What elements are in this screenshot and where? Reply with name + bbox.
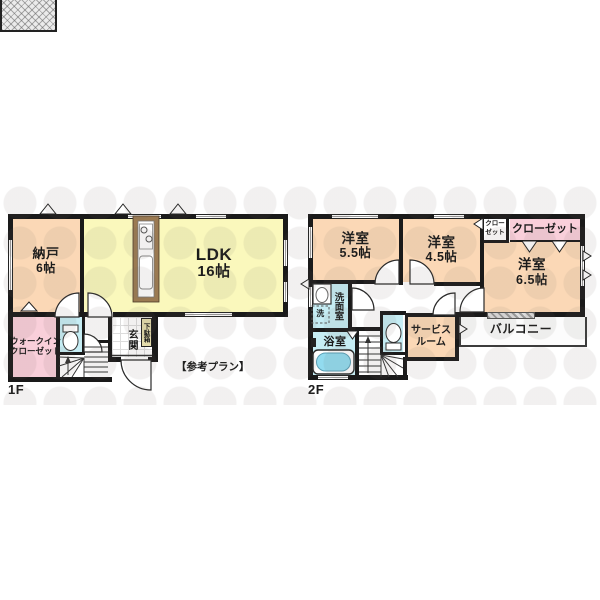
floor-plan-image: 納戸 6帖 LDK 16帖 ウォークイン クローゼット 玄関 下駄箱 1F 【参… <box>0 0 600 600</box>
label-floor2: 2F <box>308 383 338 397</box>
f2-window-left-2 <box>308 287 313 307</box>
label-laundry: 洗 <box>313 310 328 319</box>
label-service-2: ルーム <box>406 337 456 348</box>
label-yokushitsu: 浴室 <box>317 336 353 348</box>
label-wic-1: ウォークイン <box>10 337 56 346</box>
f2-wall-45-bottom <box>434 282 480 286</box>
label-nando-size: 6帖 <box>12 262 80 275</box>
f2-wall-service-left <box>405 313 408 359</box>
label-bedroom55: 洋室 <box>312 232 399 247</box>
f1-wall-hall-stairs <box>82 340 108 343</box>
vent-triangle-1f-c <box>170 204 186 214</box>
label-ldk-size: 16帖 <box>176 264 252 281</box>
f2-wall-hall-stairs <box>352 327 383 331</box>
door-arc-senmen <box>352 288 374 310</box>
f1-wall-nando-wic <box>8 312 55 317</box>
stairs-up-arrow-2f <box>365 336 371 343</box>
f2-window-right <box>580 246 585 286</box>
f2-window-top-1 <box>332 214 378 219</box>
label-bedroom45-size: 4.5帖 <box>403 251 480 265</box>
f1-window-top-1 <box>128 214 161 219</box>
label-bedroom65-size: 6.5帖 <box>484 274 580 288</box>
f1-window-right-2 <box>283 282 288 302</box>
f2-wall-bath-right <box>355 330 359 377</box>
door-arc-service <box>433 293 455 315</box>
f2-wall-toilet-bottom <box>380 352 406 355</box>
label-closet-small-2: ゼット <box>484 229 506 236</box>
f1-window-right-1 <box>283 240 288 266</box>
label-bedroom55-size: 5.5帖 <box>312 247 399 261</box>
label-service-1: サービス <box>406 325 456 336</box>
f1-wall-genkan-right <box>152 316 158 362</box>
f2-wall-closet-divider <box>506 219 509 243</box>
stairs-up-arrow-1f <box>65 356 71 363</box>
label-floor1: 1F <box>8 383 38 397</box>
f2-wall-55-bottom <box>312 280 375 284</box>
f1-window-ldk-south <box>185 312 232 317</box>
label-plan-note: 【参考プラン】 <box>176 362 240 374</box>
label-closet-large: クローゼット <box>510 223 580 235</box>
label-genkan: 玄関 <box>126 325 137 355</box>
f2-wall-senmen-right <box>348 280 352 330</box>
label-balcony: バルコニー <box>459 323 583 336</box>
label-bedroom65: 洋室 <box>484 258 580 273</box>
f1-wall-nando-ldk <box>80 219 84 312</box>
door-arc-entrance <box>121 360 151 390</box>
label-nando: 納戸 <box>12 247 80 261</box>
f1-wall-genkan-left <box>108 316 112 362</box>
vent-triangle-1f-b <box>115 204 131 214</box>
room-toilet-2f <box>383 315 403 352</box>
door-arc-bedroom65 <box>460 288 484 312</box>
f2-wall-toilet-top <box>380 311 406 315</box>
f2-wall-service-top <box>405 313 459 317</box>
entrance-porch <box>0 0 57 32</box>
f2-window-bath <box>318 375 348 380</box>
label-closet-small-1: クロー <box>484 220 506 227</box>
label-ldk: LDK <box>176 246 252 265</box>
label-wic-2: クローゼット <box>10 347 56 356</box>
f2-wall-service-bottom <box>403 357 459 361</box>
f1-wall-genkan-bottom-r <box>148 357 158 362</box>
label-bedroom45: 洋室 <box>403 236 480 251</box>
label-senmenshitsu: 洗面室 <box>332 286 342 326</box>
label-getabako: 下駄箱 <box>142 319 149 346</box>
f1-wall-toilet-right <box>82 317 85 352</box>
vent-triangle-1f-a <box>40 204 56 214</box>
f1-wall-genkan-bottom-l <box>108 357 121 362</box>
f2-wall-toilet-left <box>380 311 383 355</box>
f2-window-top-2 <box>434 214 464 219</box>
room-toilet-1f <box>59 317 82 352</box>
f2-balcony-slider-window <box>487 312 535 319</box>
door-arc-toilet-1f <box>84 334 102 352</box>
f2-wall-closet-large-bottom <box>510 240 580 242</box>
f1-window-top-2 <box>196 214 226 219</box>
